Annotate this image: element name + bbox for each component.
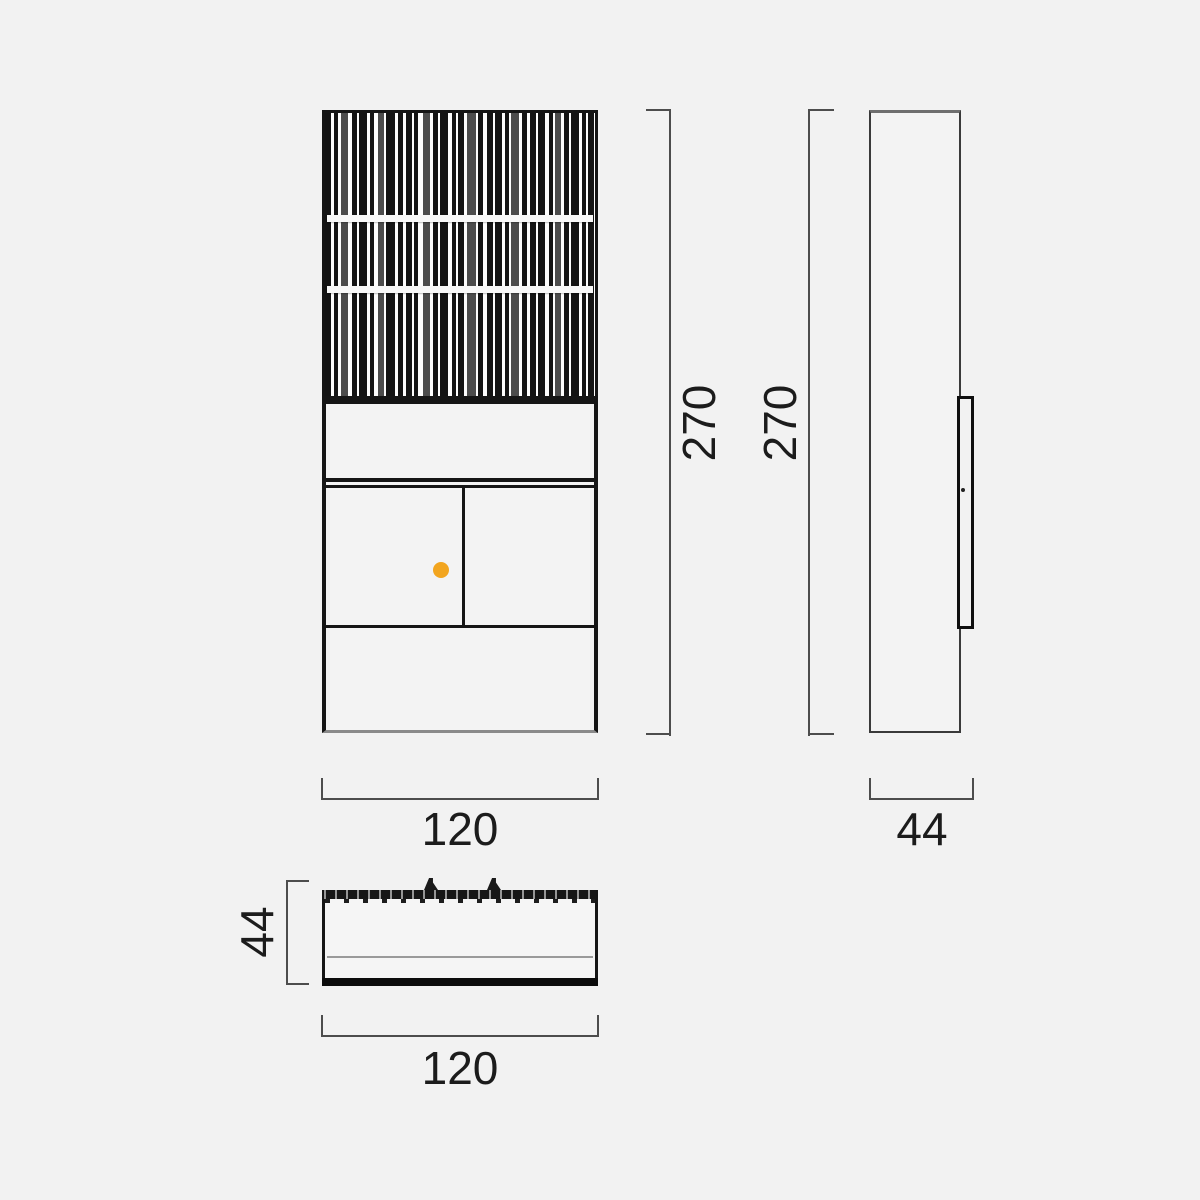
dim-top-depth-label: 44	[234, 906, 280, 957]
grille-bar	[352, 113, 357, 396]
top-view	[322, 890, 598, 986]
grille-bar	[386, 113, 395, 396]
doors-top-edge	[326, 485, 594, 488]
grille-bar	[564, 113, 569, 396]
mount-knob	[487, 878, 501, 890]
dim-front-height-tick-top	[646, 109, 671, 111]
grille-bar	[458, 113, 464, 396]
doors-center-divider	[462, 487, 465, 627]
front-lower-body	[322, 482, 598, 733]
dim-top-width-label: 120	[422, 1045, 499, 1091]
dim-front-width-tick-left	[321, 778, 323, 800]
grille-bar	[452, 113, 456, 396]
grille-bar	[406, 113, 412, 396]
grille-bar	[467, 113, 476, 396]
dim-top-width-tick-right	[597, 1015, 599, 1037]
top-grille-ticks	[325, 899, 595, 903]
grille-bar	[538, 113, 545, 396]
dim-front-height-line	[669, 110, 671, 736]
grille-bar	[582, 113, 586, 396]
indicator-dot	[433, 562, 449, 578]
dim-top-depth-tick-bottom	[286, 983, 309, 985]
dim-side-height-tick-top	[808, 109, 834, 111]
grille-bar	[325, 113, 331, 396]
dim-side-depth-tick-left	[869, 778, 871, 800]
grille-bar	[571, 113, 579, 396]
dim-side-height-line	[808, 110, 810, 736]
wall-bracket	[957, 396, 974, 629]
grille-bar	[359, 113, 367, 396]
dim-top-width-line	[322, 1035, 599, 1037]
dim-front-height-tick-bottom	[646, 733, 671, 735]
grille-bar	[549, 113, 553, 396]
grille-bar	[414, 113, 418, 396]
top-front-edge	[322, 978, 598, 986]
grille-bar	[398, 113, 403, 396]
grille-bar	[334, 113, 338, 396]
dim-front-height-label: 270	[676, 385, 722, 462]
grille-bar	[505, 113, 509, 396]
dim-side-depth-label: 44	[896, 806, 947, 852]
dim-side-height-tick-bottom	[808, 733, 834, 735]
grille-bar	[341, 113, 348, 396]
dim-top-depth-line	[286, 881, 288, 985]
dim-side-depth-tick-right	[972, 778, 974, 800]
top-seam-line	[327, 956, 593, 958]
grille-bar	[370, 113, 374, 396]
side-view	[869, 110, 961, 733]
dim-top-width-tick-left	[321, 1015, 323, 1037]
front-panel-band	[322, 400, 598, 482]
grille-bar	[487, 113, 493, 396]
grille-bar	[423, 113, 430, 396]
grille-highlight-band	[327, 286, 593, 293]
grille-bar	[511, 113, 519, 396]
top-grille-edge	[324, 890, 596, 899]
grille-bar	[440, 113, 448, 396]
front-grille	[322, 110, 598, 400]
grille-bar	[588, 113, 594, 396]
dim-side-height-label: 270	[757, 385, 803, 462]
dim-top-depth-tick-top	[286, 880, 309, 882]
front-grille-bars	[325, 113, 595, 396]
doors-bottom-edge	[326, 625, 594, 628]
grille-bar	[433, 113, 438, 396]
grille-bar	[495, 113, 502, 396]
dim-side-depth-line	[870, 798, 974, 800]
grille-bar	[478, 113, 483, 396]
bracket-pin	[961, 488, 965, 492]
dim-front-width-line	[322, 798, 599, 800]
mount-knob	[424, 878, 438, 890]
grille-highlight-band	[327, 215, 593, 222]
dim-front-width-label: 120	[422, 806, 499, 852]
grille-bar	[522, 113, 527, 396]
grille-bar	[378, 113, 384, 396]
dim-front-width-tick-right	[597, 778, 599, 800]
grille-bar	[555, 113, 561, 396]
front-view	[322, 110, 598, 733]
grille-bar	[530, 113, 536, 396]
